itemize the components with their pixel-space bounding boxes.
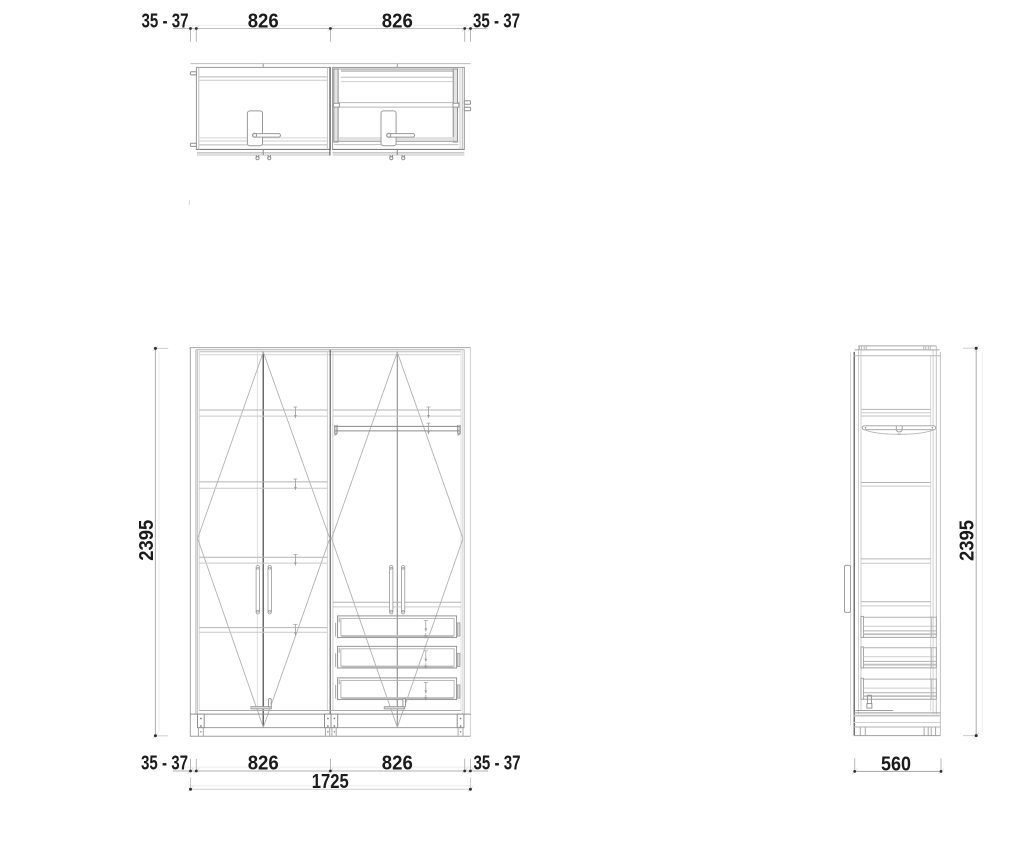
- svg-text:35 - 37: 35 - 37: [141, 751, 188, 774]
- svg-text:826: 826: [382, 751, 413, 774]
- svg-text:35 - 37: 35 - 37: [473, 10, 520, 33]
- svg-text:35 - 37: 35 - 37: [142, 10, 189, 33]
- svg-text:826: 826: [382, 10, 413, 33]
- svg-text:2395: 2395: [135, 520, 158, 561]
- svg-text:2395: 2395: [956, 520, 979, 561]
- svg-text:35 - 37: 35 - 37: [474, 751, 521, 774]
- svg-text:560: 560: [881, 753, 911, 776]
- svg-text:826: 826: [248, 10, 279, 33]
- svg-text:826: 826: [248, 751, 279, 774]
- svg-text:1725: 1725: [312, 770, 349, 793]
